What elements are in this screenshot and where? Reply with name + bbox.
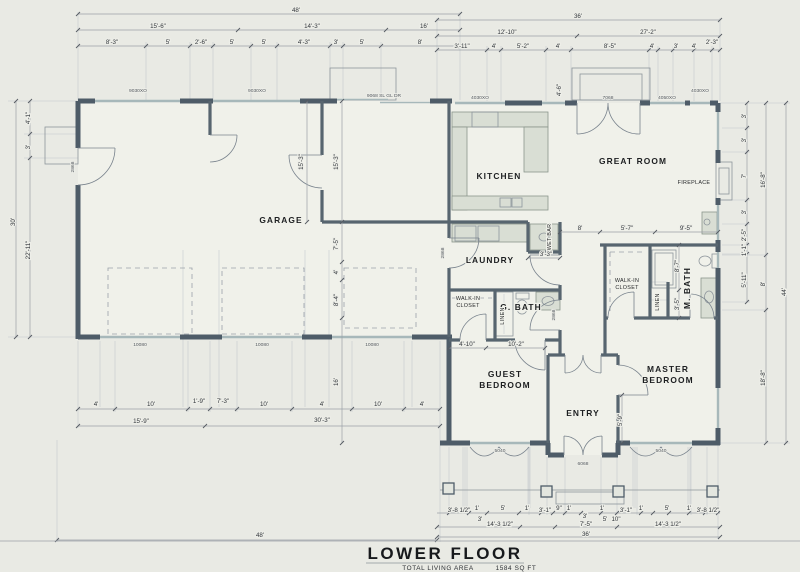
- dimension-label: 3'-1": [620, 507, 632, 514]
- dimension-label: 5': [501, 505, 506, 512]
- room-label: M. BATH: [682, 267, 692, 309]
- dimension-label: 4': [94, 401, 99, 408]
- room-label: BEDROOM: [479, 380, 530, 390]
- dimension-label: 14'-3 1/2": [655, 521, 681, 528]
- dimension-label: 5': [665, 505, 670, 512]
- schedule-label: 4030XO: [691, 88, 709, 94]
- dimension-label: 10'-2": [508, 341, 524, 348]
- dimension-label: 5'-2": [517, 43, 529, 50]
- dimension-label: 4': [492, 43, 497, 50]
- dimension-label: 2'-6": [195, 39, 207, 46]
- schedule-label: 4050XO: [658, 95, 676, 101]
- fixture-label: CLOSET: [615, 285, 639, 291]
- dimension-label: 3'-8 1/2": [448, 507, 471, 514]
- room-label: MASTER: [647, 364, 689, 374]
- dimension-label: 8'-3": [106, 39, 118, 46]
- dimension-label: 4'-10": [459, 341, 475, 348]
- dimension-label: 4': [650, 43, 655, 50]
- room-label: GREAT ROOM: [599, 156, 667, 166]
- schedule-label: 4030XO: [471, 95, 489, 101]
- dimension-label: 4'-1": [25, 112, 32, 124]
- dimension-label: 15'-3": [333, 154, 340, 170]
- dimension-label: 4': [692, 43, 697, 50]
- dimension-label: 48': [292, 7, 300, 14]
- dimension-label: 1': [567, 505, 572, 512]
- room-label: BEDROOM: [642, 375, 693, 385]
- dimension-label: 9": [556, 505, 562, 512]
- dimension-label: 1': [687, 505, 692, 512]
- dimension-label: 22'-11": [25, 241, 32, 260]
- schedule-label: 6068: [578, 461, 589, 467]
- dimension-label: 12'-10": [497, 29, 516, 36]
- dimension-label: 30': [10, 218, 17, 226]
- dimension-label: 7': [741, 174, 748, 179]
- room-label: G. BATH: [500, 302, 542, 312]
- dimension-label: 15'-9": [133, 418, 149, 425]
- dimension-label: 7'-5": [580, 521, 592, 528]
- dimension-label: 4': [556, 43, 561, 50]
- dimension-label: 3'-3": [540, 251, 552, 258]
- blueprint-sheet: GARAGEKITCHENGREAT ROOMLAUNDRYG. BATHGUE…: [0, 0, 800, 572]
- room-label: KITCHEN: [477, 171, 522, 181]
- dimension-label: 10': [374, 401, 382, 408]
- schedule-label: 9030XO: [129, 88, 147, 94]
- dimension-label: 1': [475, 505, 480, 512]
- dimension-label: 5'-11": [741, 272, 748, 287]
- dimension-label: 3': [741, 210, 748, 215]
- schedule-label: 2868: [440, 247, 446, 258]
- wet-bar-counter: [530, 224, 558, 250]
- dimension-label: 8': [418, 39, 423, 46]
- dimension-label: 16': [420, 23, 428, 30]
- dimension-label: 44': [781, 288, 788, 296]
- dimension-label: 4': [333, 270, 340, 275]
- dimension-label: 18'-8": [760, 370, 767, 386]
- dimension-label: 5'-9": [617, 414, 624, 426]
- dimension-label: 3'-5": [674, 298, 681, 310]
- dimension-label: 36': [582, 531, 590, 538]
- fixture-label: FIREPLACE: [678, 180, 711, 186]
- dimension-label: 1': [639, 505, 644, 512]
- dimension-label: 1'-9": [193, 398, 205, 405]
- schedule-label: 10080: [255, 342, 269, 348]
- dimension-label: 7'-3": [217, 398, 229, 405]
- schedule-label: 10080: [133, 342, 147, 348]
- dimension-label: 36': [574, 13, 582, 20]
- dimension-label: 8': [578, 225, 583, 232]
- dimension-label: 2'-3": [706, 39, 718, 46]
- dimension-label: 5': [166, 39, 171, 46]
- dimension-label: 10': [147, 401, 155, 408]
- dimension-label: 3': [334, 39, 339, 46]
- fixture-label: LINEN: [500, 307, 506, 324]
- fixture-label: WALK-IN: [456, 296, 480, 302]
- dimension-label: 3': [741, 138, 748, 143]
- dimension-label: 4'-6": [556, 84, 563, 96]
- porch-column: [613, 486, 624, 497]
- dimension-label: 3': [741, 114, 748, 119]
- schedule-label: 7068: [603, 95, 614, 101]
- dimension-label: 15'-6": [150, 23, 166, 30]
- dimension-label: 3': [478, 516, 483, 523]
- porch-column: [541, 486, 552, 497]
- dimension-label: 15'-3": [298, 154, 305, 170]
- dimension-label: 7'-5": [333, 238, 340, 250]
- porch-column: [443, 483, 454, 494]
- dimension-label: 3': [25, 145, 32, 150]
- fixture-label: WET BAR: [547, 224, 553, 251]
- room-label: LAUNDRY: [466, 255, 514, 265]
- dimension-label: 8': [760, 282, 767, 287]
- room-label: ENTRY: [566, 408, 600, 418]
- dimension-label: 14'-3 1/2": [487, 521, 513, 528]
- room-label: GARAGE: [259, 215, 302, 225]
- dimension-label: 3': [583, 513, 588, 520]
- dimension-label: 8'-7": [674, 260, 681, 272]
- dimension-label: 4'-3": [298, 39, 310, 46]
- sheet-title: LOWER FLOOR: [368, 544, 523, 563]
- schedule-label: 5040: [495, 448, 506, 454]
- dimension-label: 8'-4": [333, 294, 340, 306]
- dimension-label: 4': [420, 401, 425, 408]
- dimension-label: 30'-3": [314, 417, 330, 424]
- dimension-label: 9'-5": [680, 225, 692, 232]
- dimension-label: 4': [320, 401, 325, 408]
- dimension-label: 2'-5": [741, 229, 748, 241]
- fixture-label: LINEN: [655, 293, 661, 310]
- total-living-area-label: TOTAL LIVING AREA: [402, 565, 474, 572]
- area-value: 1584 SQ FT: [496, 565, 537, 572]
- dimension-label: 16': [333, 378, 340, 386]
- schedule-label: 5040: [656, 448, 667, 454]
- schedule-label: 9068 SL GL DR: [367, 93, 402, 99]
- dimension-label: 10": [611, 516, 620, 523]
- porch-column: [707, 486, 718, 497]
- dimension-label: 5': [603, 516, 608, 523]
- dimension-label: 14'-3": [304, 23, 320, 30]
- schedule-label: 2868: [70, 161, 76, 172]
- dimension-label: 5'-7": [621, 225, 633, 232]
- schedule-label: 10080: [365, 342, 379, 348]
- fixture-label: WALK-IN: [615, 278, 639, 284]
- dimension-label: 10': [260, 401, 268, 408]
- dimension-label: 3'-8 1/2": [697, 507, 720, 514]
- dimension-label: 3'-1": [539, 507, 551, 514]
- schedule-label: 9030XO: [248, 88, 266, 94]
- room-label: GUEST: [488, 369, 522, 379]
- dimension-label: 8'-5": [604, 43, 616, 50]
- dimension-label: 5': [230, 39, 235, 46]
- dimension-label: 48': [256, 532, 264, 539]
- fixture-label: CLOSET: [456, 303, 480, 309]
- dimension-label: 5': [360, 39, 365, 46]
- dimension-label: 1'-1": [741, 244, 748, 256]
- dimension-label: 5': [262, 39, 267, 46]
- dimension-label: 1': [525, 505, 530, 512]
- dimension-label: 3'-11": [454, 43, 469, 50]
- dimension-label: 1': [600, 505, 605, 512]
- dimension-label: 16'-8": [760, 172, 767, 188]
- dimension-label: 3': [674, 43, 679, 50]
- dimension-label: 27'-2": [640, 29, 656, 36]
- schedule-label: 2868: [551, 309, 557, 320]
- floor-plan-drawing: GARAGEKITCHENGREAT ROOMLAUNDRYG. BATHGUE…: [0, 0, 800, 572]
